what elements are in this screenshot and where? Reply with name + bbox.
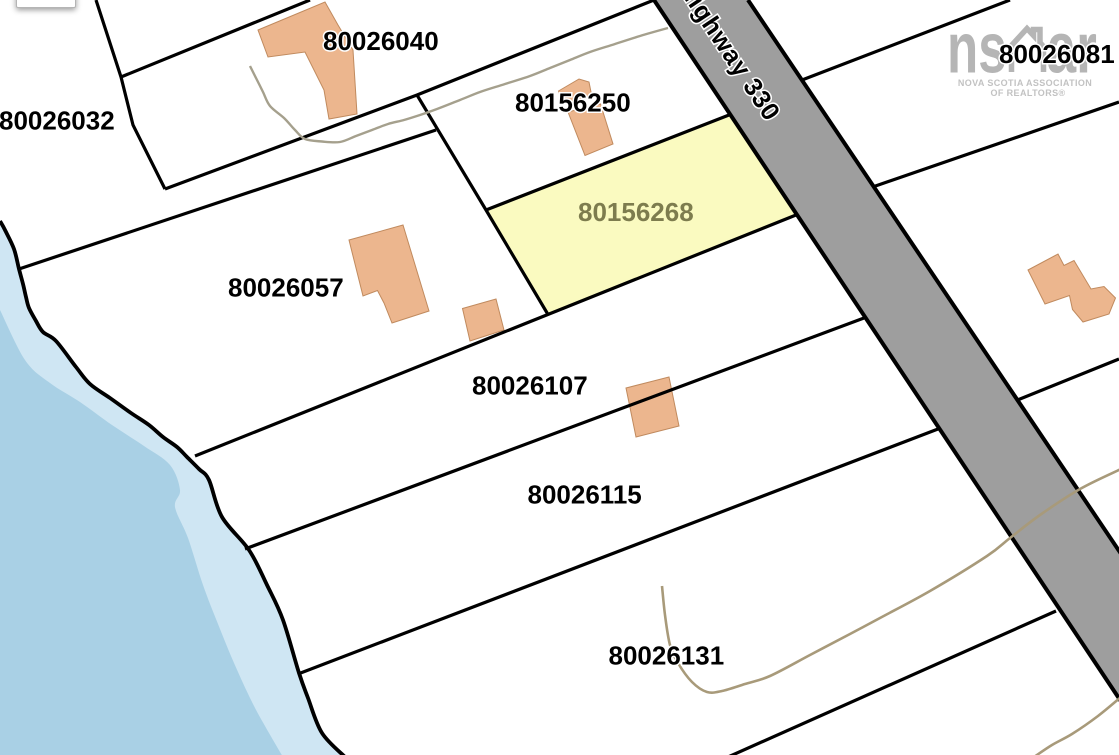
svg-text:80026131: 80026131: [609, 641, 725, 671]
svg-text:80026107: 80026107: [472, 371, 588, 401]
svg-text:80156268: 80156268: [578, 197, 694, 227]
svg-text:80026032: 80026032: [0, 106, 115, 136]
svg-text:OF REALTORS®: OF REALTORS®: [990, 88, 1065, 98]
svg-text:80026040: 80026040: [323, 26, 439, 56]
svg-text:80026115: 80026115: [528, 480, 642, 510]
svg-text:80026057: 80026057: [228, 273, 344, 303]
svg-text:80026081: 80026081: [999, 39, 1115, 69]
svg-text:NOVA SCOTIA ASSOCIATION: NOVA SCOTIA ASSOCIATION: [958, 78, 1092, 88]
svg-text:80156250: 80156250: [515, 88, 631, 118]
svg-text:ns: ns: [947, 9, 1007, 88]
